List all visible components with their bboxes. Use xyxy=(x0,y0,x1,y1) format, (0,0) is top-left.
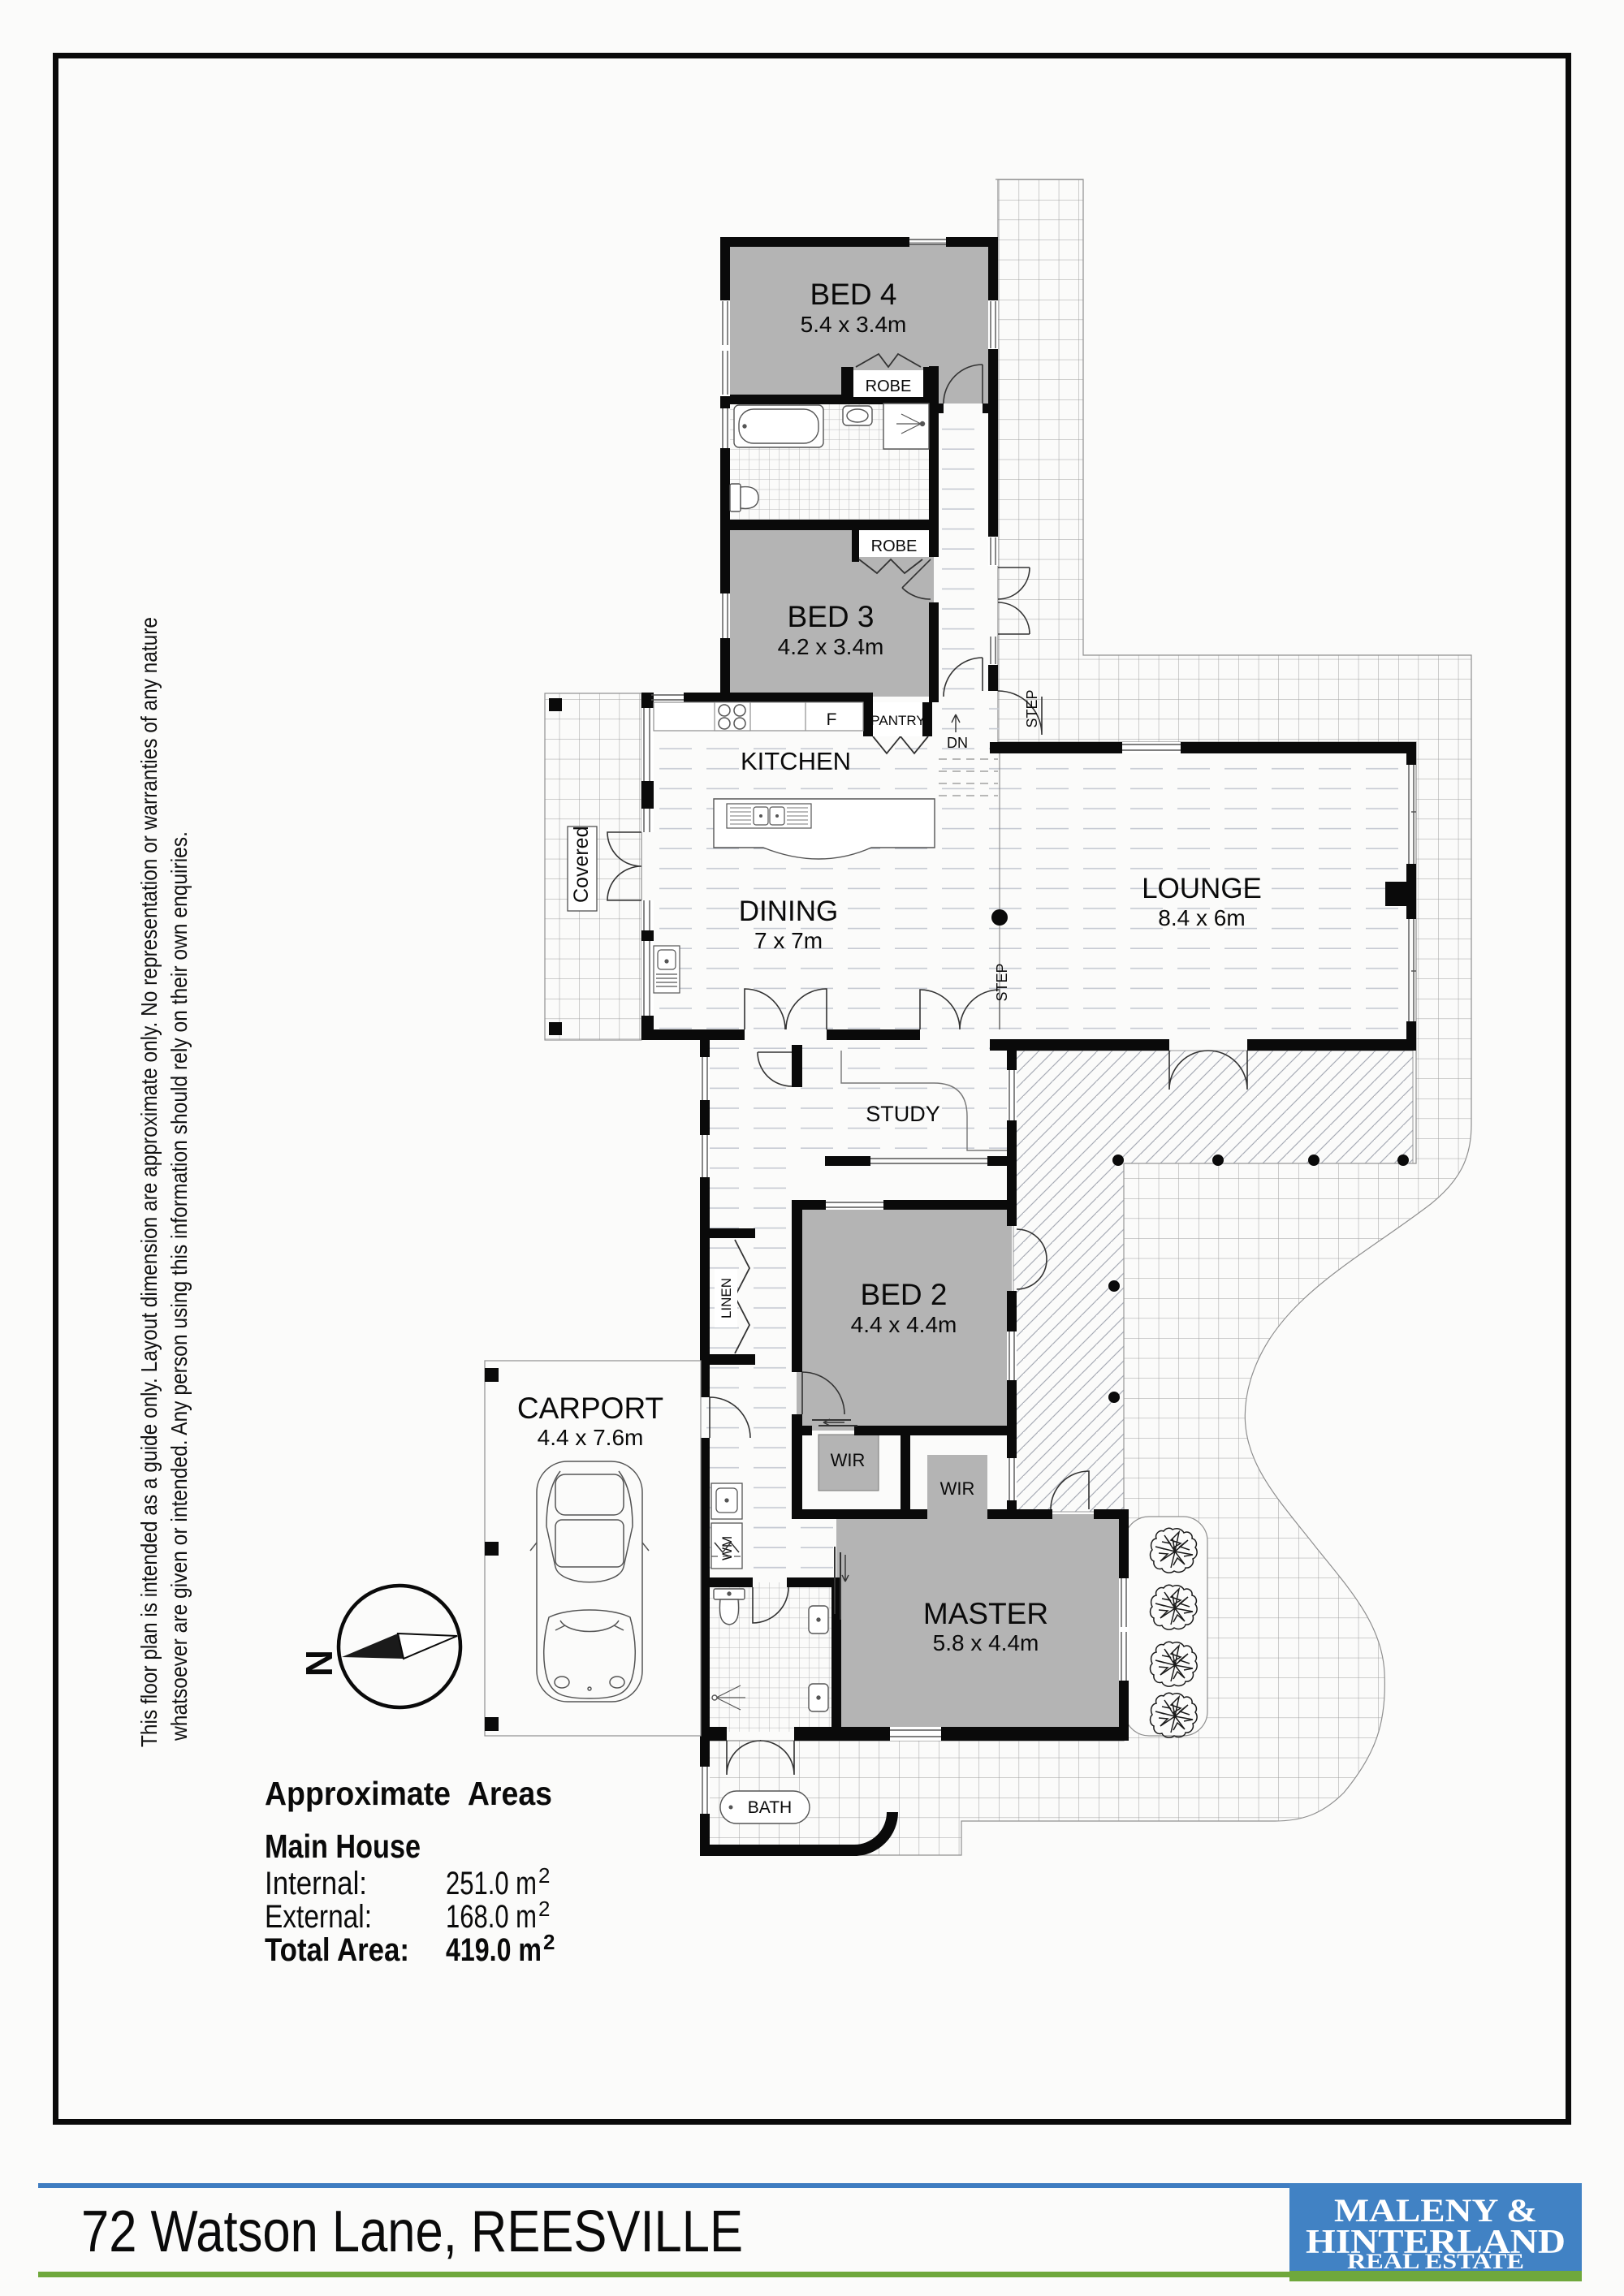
svg-text:BED 3: BED 3 xyxy=(788,600,875,633)
svg-text:F: F xyxy=(827,710,837,729)
svg-text:BED 4: BED 4 xyxy=(810,278,897,311)
svg-text:4.4 x 4.4m: 4.4 x 4.4m xyxy=(851,1312,957,1337)
svg-text:LINEN: LINEN xyxy=(719,1278,734,1318)
svg-text:whatsoever are given or intend: whatsoever are given or intended. Any pe… xyxy=(166,831,192,1741)
svg-text:ROBE: ROBE xyxy=(871,537,918,555)
svg-text:PANTRY: PANTRY xyxy=(870,713,925,728)
svg-text:4.4 x 7.6m: 4.4 x 7.6m xyxy=(538,1425,644,1450)
svg-text:419.0 m: 419.0 m xyxy=(446,1932,542,1968)
svg-text:8.4 x 6m: 8.4 x 6m xyxy=(1158,905,1245,930)
svg-text:72 Watson Lane, REESVILLE: 72 Watson Lane, REESVILLE xyxy=(81,2199,743,2264)
svg-text:4.2 x 3.4m: 4.2 x 3.4m xyxy=(778,634,884,659)
svg-text:STEP: STEP xyxy=(1024,689,1040,727)
svg-text:5.8 x 4.4m: 5.8 x 4.4m xyxy=(933,1630,1039,1655)
svg-text:5.4 x 3.4m: 5.4 x 3.4m xyxy=(801,312,907,337)
svg-text:STEP: STEP xyxy=(994,963,1010,1001)
svg-text:Total Area:: Total Area: xyxy=(265,1932,409,1968)
svg-text:DN: DN xyxy=(947,735,968,751)
svg-text:This floor plan is intended as: This floor plan is intended as a guide o… xyxy=(136,617,162,1747)
svg-text:N: N xyxy=(298,1650,340,1677)
svg-text:251.0 m: 251.0 m xyxy=(446,1866,537,1901)
svg-text:Internal:: Internal: xyxy=(265,1866,367,1901)
svg-text:BATH: BATH xyxy=(748,1798,792,1817)
svg-text:LOUNGE: LOUNGE xyxy=(1142,873,1262,904)
svg-text:7 x 7m: 7 x 7m xyxy=(754,928,823,953)
svg-text:WIR: WIR xyxy=(940,1478,975,1499)
svg-text:STUDY: STUDY xyxy=(866,1102,940,1126)
svg-text:KITCHEN: KITCHEN xyxy=(741,747,851,775)
svg-text:CARPORT: CARPORT xyxy=(517,1392,663,1425)
svg-text:External:: External: xyxy=(265,1899,372,1935)
svg-text:Covered: Covered xyxy=(570,826,593,904)
svg-text:REAL ESTATE: REAL ESTATE xyxy=(1347,2250,1524,2273)
svg-text:WIR: WIR xyxy=(831,1450,866,1470)
svg-text:Main House: Main House xyxy=(265,1828,421,1865)
svg-text:2: 2 xyxy=(538,1863,550,1888)
svg-text:2: 2 xyxy=(543,1930,555,1954)
svg-text:MASTER: MASTER xyxy=(923,1597,1048,1630)
svg-text:2: 2 xyxy=(538,1897,550,1921)
svg-text:Approximate Areas: Approximate Areas xyxy=(265,1775,552,1812)
svg-text:DINING: DINING xyxy=(739,896,839,927)
svg-text:168.0 m: 168.0 m xyxy=(446,1899,537,1935)
svg-text:ROBE: ROBE xyxy=(866,378,912,395)
svg-text:BED 2: BED 2 xyxy=(861,1278,948,1311)
